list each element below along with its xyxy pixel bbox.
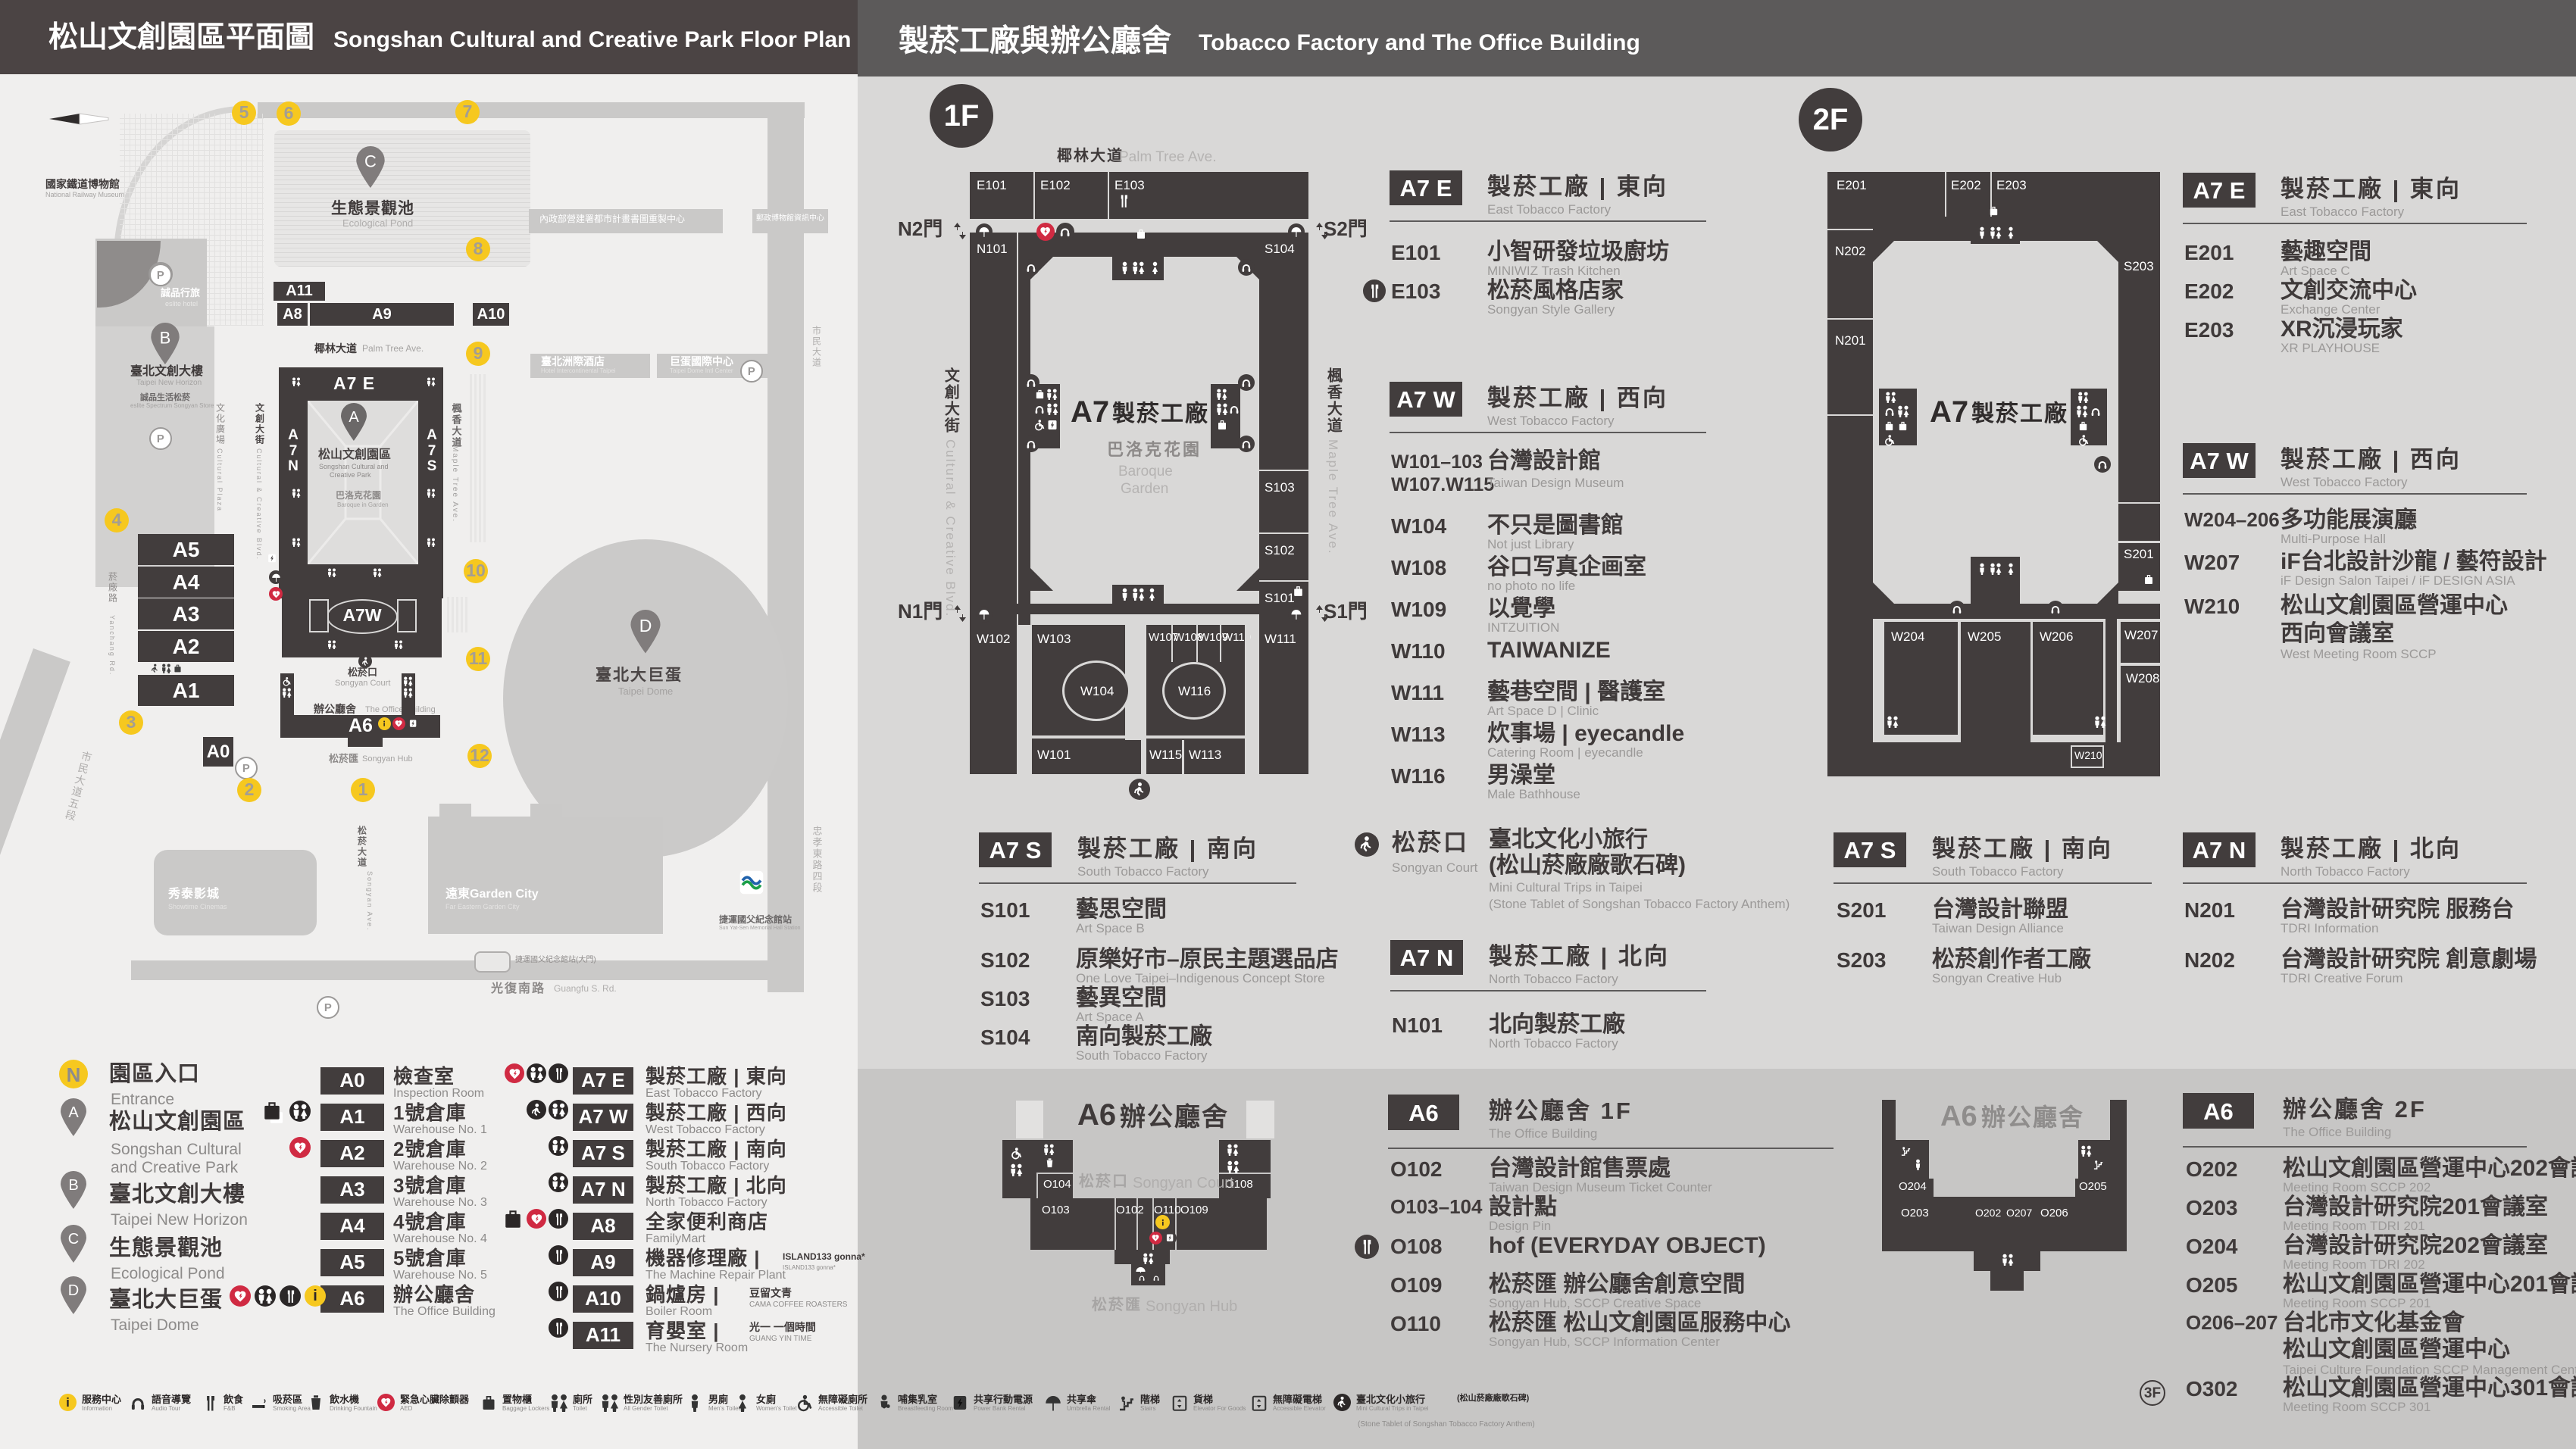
svg-text:C: C [364, 152, 377, 171]
svg-text:A: A [349, 409, 359, 426]
svg-text:D: D [68, 1282, 79, 1299]
svg-text:B: B [160, 329, 171, 348]
svg-text:A: A [68, 1104, 79, 1121]
svg-text:C: C [68, 1231, 79, 1248]
svg-text:D: D [639, 616, 652, 635]
svg-text:B: B [68, 1177, 78, 1194]
